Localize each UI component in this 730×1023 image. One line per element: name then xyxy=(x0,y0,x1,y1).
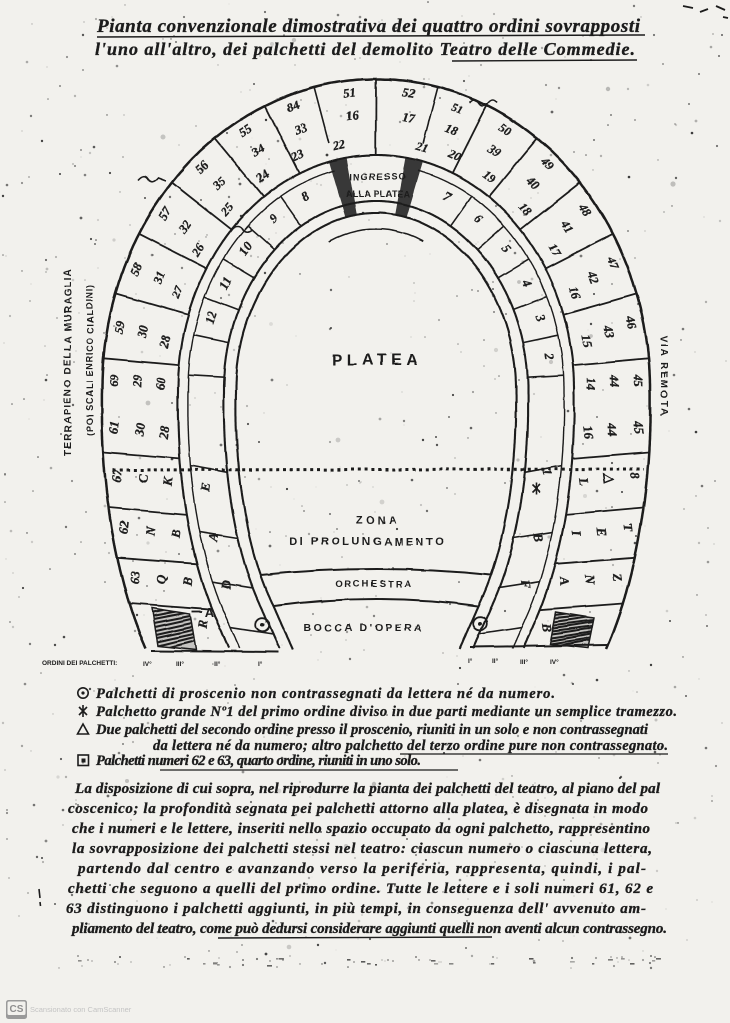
svg-text:51: 51 xyxy=(342,85,356,100)
svg-text:L: L xyxy=(576,476,592,487)
svg-text:Palchetti numeri 62 e 63, quar: Palchetti numeri 62 e 63, quarto ordine,… xyxy=(96,753,421,769)
svg-text:pliamento del teatro, come può: pliamento del teatro, come può dedursi c… xyxy=(70,921,667,937)
svg-text:IV°: IV° xyxy=(550,658,559,666)
svg-text:ORDINI DEI PALCHETTI:: ORDINI DEI PALCHETTI: xyxy=(42,660,117,667)
svg-text:I°: I° xyxy=(258,660,263,668)
svg-text:TERRAPIENO DELLA MURAGLIA: TERRAPIENO DELLA MURAGLIA xyxy=(63,268,74,456)
svg-text:chetti che seguono a quelli de: chetti che seguono a quelli del primo or… xyxy=(68,881,653,897)
svg-text:44: 44 xyxy=(604,421,621,437)
svg-text:63 distinguono i palchetti agg: 63 distinguono i palchetti aggiunti, in … xyxy=(66,901,646,917)
svg-text:III°: III° xyxy=(176,660,184,668)
svg-text:Pianta convenzionale dimostrat: Pianta convenzionale dimostrativa dei qu… xyxy=(96,16,641,37)
svg-text:che i numeri e le lettere, ins: che i numeri e le lettere, inseriti nell… xyxy=(72,821,650,837)
svg-text:52: 52 xyxy=(401,85,415,101)
svg-text:30: 30 xyxy=(131,422,148,438)
svg-text:45: 45 xyxy=(630,419,647,435)
svg-text:15: 15 xyxy=(579,334,595,349)
svg-text:62: 62 xyxy=(115,520,132,535)
svg-text:43: 43 xyxy=(601,323,617,339)
svg-text:29: 29 xyxy=(131,374,145,389)
svg-text:22: 22 xyxy=(331,137,347,154)
svg-text:16: 16 xyxy=(580,425,597,440)
svg-text:VIA REMOTA: VIA REMOTA xyxy=(658,335,669,417)
svg-text:Palchetti di proscenio non con: Palchetti di proscenio non contrassegnat… xyxy=(96,686,555,702)
svg-text:La disposizione di cui sopra,: La disposizione di cui sopra, nel riprod… xyxy=(74,781,661,797)
svg-text:la sovrapposizione dei palchet: la sovrapposizione dei palchetti stessi … xyxy=(72,841,652,857)
svg-text:69: 69 xyxy=(107,374,121,388)
svg-text:63: 63 xyxy=(126,570,143,585)
svg-text:partendo dal centro e avanzand: partendo dal centro e avanzando verso la… xyxy=(76,861,646,877)
svg-text:INGRESSO: INGRESSO xyxy=(350,172,406,182)
svg-text:(POI SCALI ENRICO CIALDINI): (POI SCALI ENRICO CIALDINI) xyxy=(85,284,95,436)
svg-text:I°: I° xyxy=(468,657,473,665)
svg-text:16: 16 xyxy=(345,108,360,124)
svg-text:IV°: IV° xyxy=(143,660,152,668)
svg-text:ORCHESTRA: ORCHESTRA xyxy=(335,579,413,590)
svg-text:ALLA PLATEA: ALLA PLATEA xyxy=(346,189,411,199)
svg-text:coscenico; la profondità segna: coscenico; la profondità segnata pei pal… xyxy=(68,801,648,817)
svg-text:l'uno all'altro, dei palchetti: l'uno all'altro, dei palchetti del demol… xyxy=(95,39,635,59)
svg-text:BOCCA D'OPERA: BOCCA D'OPERA xyxy=(304,622,425,634)
svg-text:III°: III° xyxy=(520,658,528,666)
svg-text:Z: Z xyxy=(609,572,625,583)
svg-text:28: 28 xyxy=(155,425,172,441)
svg-text:da lettera né da numero; altro: da lettera né da numero; altro palchetto… xyxy=(153,738,668,754)
svg-text:A: A xyxy=(204,605,214,620)
svg-text:Palchetto grande Nº1 del primo: Palchetto grande Nº1 del primo ordine di… xyxy=(96,704,677,720)
svg-text:ZONA: ZONA xyxy=(356,515,399,527)
svg-text:Due palchetti del secondo ordi: Due palchetti del secondo ordine presso … xyxy=(95,722,648,738)
svg-text:PLATEA: PLATEA xyxy=(332,352,422,369)
svg-text:△: △ xyxy=(601,472,617,485)
svg-text:II°: II° xyxy=(492,657,499,665)
svg-text:45: 45 xyxy=(631,373,645,387)
svg-text:·II°: ·II° xyxy=(212,660,221,668)
svg-text:61: 61 xyxy=(105,420,121,435)
svg-text:DI PROLUNGAMENTO: DI PROLUNGAMENTO xyxy=(290,536,447,548)
svg-text:44: 44 xyxy=(607,373,621,387)
svg-text:Scansionato con CamScanner: Scansionato con CamScanner xyxy=(30,1005,132,1014)
svg-text:14: 14 xyxy=(584,378,598,391)
svg-text:60: 60 xyxy=(154,377,168,390)
svg-text:CS: CS xyxy=(10,1004,24,1015)
